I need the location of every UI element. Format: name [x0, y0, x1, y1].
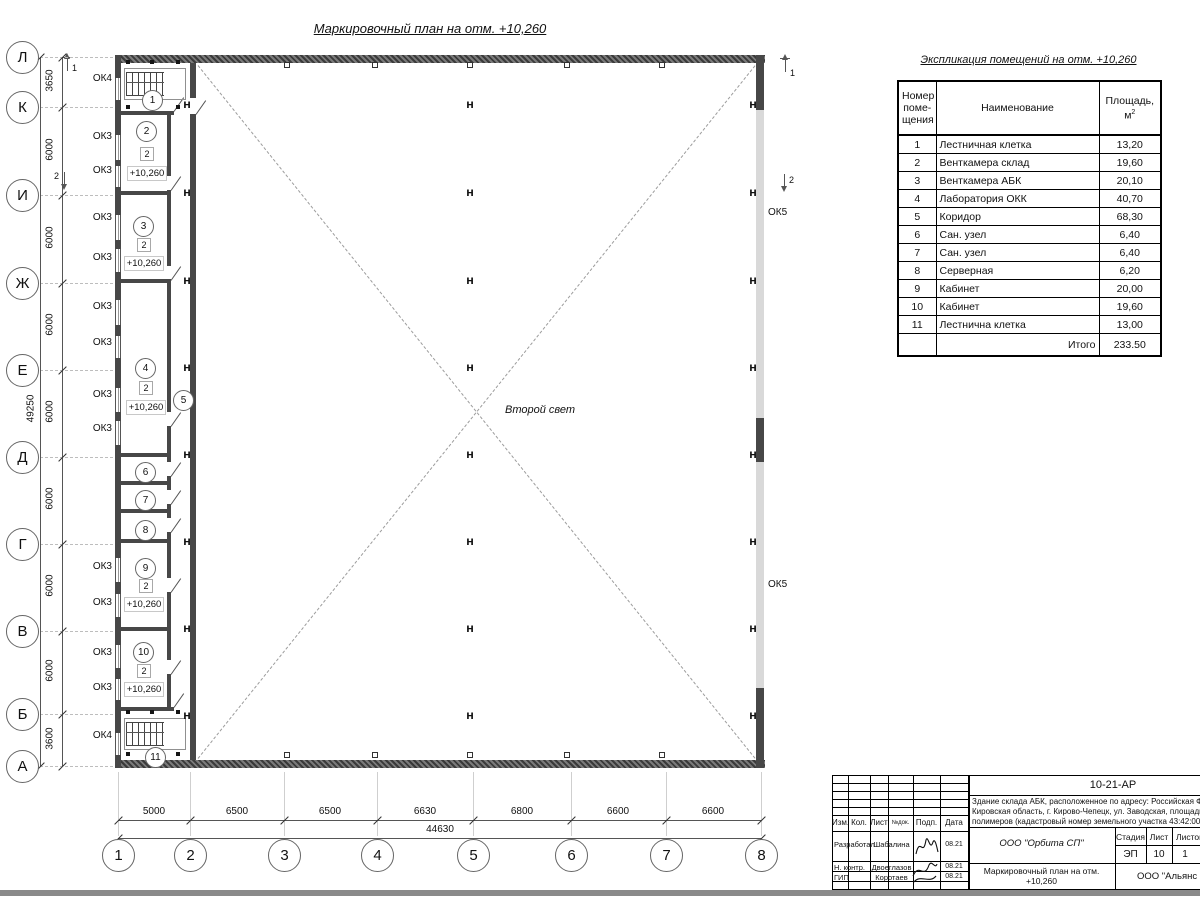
- left-wall-pier: [115, 617, 121, 645]
- cell-num: 4: [898, 190, 936, 208]
- header-name: Наименование: [936, 81, 1099, 135]
- axis-leader: [40, 195, 113, 196]
- axis-grid-line: [190, 772, 191, 836]
- table-row: 7Сан. узел6,40: [898, 244, 1161, 262]
- tb-line: [1115, 845, 1200, 846]
- cell-name: Коридор: [936, 208, 1099, 226]
- table-row: 4Лаборатория ОКК40,70: [898, 190, 1161, 208]
- door-swing: [171, 462, 182, 476]
- axis-leader: [40, 57, 113, 58]
- column-dot: [176, 752, 180, 756]
- right-wall-window-band: [756, 55, 764, 768]
- axis-number: 2: [174, 839, 207, 872]
- tb-date: 08.21: [940, 863, 968, 870]
- table-row: 1Лестничная клетка13,20: [898, 135, 1161, 154]
- cell-area: 19,60: [1099, 154, 1161, 172]
- hall-wall: [190, 63, 196, 98]
- tb-sheet-value: 10: [1146, 849, 1172, 860]
- cell-area: 20,00: [1099, 280, 1161, 298]
- tb-date: 08.21: [940, 841, 968, 848]
- axis-leader: [40, 544, 113, 545]
- left-wall-pier: [115, 55, 121, 78]
- axis-leader: [40, 631, 113, 632]
- column-mark: Н: [181, 538, 193, 548]
- column-mark: Н: [464, 277, 476, 287]
- tb-line: [832, 831, 968, 832]
- tb-col-kol: Кол.: [848, 818, 870, 827]
- table-row: 6Сан. узел6,40: [898, 226, 1161, 244]
- cell-area: 20,10: [1099, 172, 1161, 190]
- axis-grid-line: [666, 772, 667, 836]
- table-header-row: Номер поме- щения Наименование Площадь, …: [898, 81, 1161, 135]
- section-line: [785, 59, 786, 72]
- axis-letter: К: [6, 91, 39, 124]
- room-number: 8: [135, 520, 156, 541]
- dim-label: 6500: [207, 806, 267, 817]
- axis-letter: Л: [6, 41, 39, 74]
- stair-rail: [126, 82, 164, 83]
- cell-name: Кабинет: [936, 280, 1099, 298]
- cell-num: 9: [898, 280, 936, 298]
- column-dot: [176, 710, 180, 714]
- header-line: щения: [902, 114, 933, 126]
- tb-line: [968, 863, 1200, 864]
- tb-sheets-label: Листов: [1176, 832, 1200, 842]
- window-label-ok4: ОК4: [86, 73, 112, 85]
- explication-title: Экспликация помещений на отм. +10,260: [897, 54, 1160, 66]
- tb-line: [832, 807, 968, 808]
- door-swing: [171, 490, 182, 504]
- room-number: 5: [173, 390, 194, 411]
- cell-name: Кабинет: [936, 298, 1099, 316]
- left-wall-pier: [115, 100, 121, 135]
- wall-tick: [659, 62, 665, 68]
- tb-col-ndok: №док.: [888, 820, 913, 826]
- cell-num: 11: [898, 316, 936, 334]
- cell-num: 6: [898, 226, 936, 244]
- wall-tick: [564, 752, 570, 758]
- tb-drawing-title-line2: +10,260: [968, 876, 1115, 886]
- tb-design-org: ООО "Орбита СП": [968, 838, 1115, 849]
- plan-title: Маркировочный план на отм. +10,260: [260, 21, 600, 36]
- section-arrow-up-icon: [782, 54, 788, 60]
- window-label-ok3: ОК3: [86, 647, 112, 659]
- cell-name: Лестнична клетка: [936, 316, 1099, 334]
- cell-num: 3: [898, 172, 936, 190]
- tb-stage-label: Стадия: [1115, 832, 1146, 842]
- storey-mark: 2: [139, 381, 153, 395]
- column-mark: Н: [181, 364, 193, 374]
- tb-line: [968, 795, 1200, 796]
- cell-num: 8: [898, 262, 936, 280]
- dim-label: 6000: [45, 218, 56, 258]
- column-dot: [126, 60, 130, 64]
- column-mark: Н: [747, 277, 759, 287]
- second-light-label: Второй свет: [505, 404, 575, 416]
- dim-label: 6600: [683, 806, 743, 817]
- column-mark: Н: [181, 277, 193, 287]
- window-label-ok5: ОК5: [768, 207, 787, 218]
- section-number: 1: [72, 63, 77, 73]
- table-row: 8Серверная6,20: [898, 262, 1161, 280]
- column-mark: Н: [181, 712, 193, 722]
- room-number: 7: [135, 490, 156, 511]
- cell-name: Сан. узел: [936, 226, 1099, 244]
- elevation-mark: +10,260: [124, 256, 164, 271]
- tb-line: [832, 799, 968, 800]
- partition-wall: [121, 279, 171, 283]
- window-label-ok5: ОК5: [768, 579, 787, 590]
- dim-label: 3600: [45, 719, 56, 759]
- tb-address-line: Кировская область, г. Кирово-Чепецк, ул.…: [972, 807, 1200, 816]
- column-mark: Н: [747, 625, 759, 635]
- table-row: 5Коридор68,30: [898, 208, 1161, 226]
- cell-name: Венткамера склад: [936, 154, 1099, 172]
- dim-label: 6630: [395, 806, 455, 817]
- corridor-wall: [167, 280, 171, 412]
- sheet-frame-bar: [0, 890, 1200, 896]
- right-wall-pier: [756, 688, 764, 768]
- door-swing: [171, 518, 182, 532]
- total-value: 233.50: [1099, 334, 1161, 357]
- dim-label: 6800: [492, 806, 552, 817]
- column-dot: [126, 752, 130, 756]
- cell-area: 40,70: [1099, 190, 1161, 208]
- section-number: 1: [790, 68, 795, 78]
- section-line: [67, 58, 68, 71]
- dim-label: 6000: [45, 479, 56, 519]
- axis-number: 3: [268, 839, 301, 872]
- dim-label: 6000: [45, 392, 56, 432]
- left-wall-pier: [115, 582, 121, 594]
- wall-tick: [564, 62, 570, 68]
- axis-letter: В: [6, 615, 39, 648]
- stair-rail: [126, 732, 164, 733]
- explication-table: Номер поме- щения Наименование Площадь, …: [897, 80, 1162, 357]
- header-line: м2: [1103, 107, 1158, 122]
- unit-sup: 2: [1131, 109, 1135, 116]
- left-wall-pier: [115, 160, 121, 166]
- axis-letter: Д: [6, 441, 39, 474]
- column-mark: Н: [747, 712, 759, 722]
- dim-label: 5000: [124, 806, 184, 817]
- elevation-mark: +10,260: [124, 597, 164, 612]
- tb-date: 08.21: [940, 873, 968, 880]
- column-dot: [126, 710, 130, 714]
- axis-letter: И: [6, 179, 39, 212]
- axis-leader: [40, 283, 113, 284]
- column-mark: Н: [464, 538, 476, 548]
- dim-label: 6600: [588, 806, 648, 817]
- cell-name: Лестничная клетка: [936, 135, 1099, 154]
- partition-wall: [121, 111, 174, 115]
- elevation-mark: +10,260: [127, 166, 167, 181]
- wall-tick: [467, 62, 473, 68]
- cell-area: 13,00: [1099, 316, 1161, 334]
- tb-col-izm: Изм.: [832, 818, 848, 827]
- room-number: 3: [133, 216, 154, 237]
- section-arrow-down-icon: [781, 186, 787, 192]
- bottom-wall: [115, 760, 765, 768]
- window-label-ok3: ОК3: [86, 252, 112, 264]
- tb-line: [832, 783, 968, 784]
- room-number: 10: [133, 642, 154, 663]
- tb-address-line: полимеров (кадастровый номер земельного …: [972, 817, 1200, 826]
- cell-area: 6,40: [1099, 244, 1161, 262]
- axis-leader: [40, 107, 113, 108]
- window-label-ok3: ОК3: [86, 682, 112, 694]
- window-label-ok3: ОК3: [86, 131, 112, 143]
- table-row: 10Кабинет19,60: [898, 298, 1161, 316]
- column-mark: Н: [464, 101, 476, 111]
- cell-empty: [898, 334, 936, 357]
- column-mark: Н: [747, 189, 759, 199]
- cell-num: 7: [898, 244, 936, 262]
- tb-line: [832, 791, 968, 792]
- table-row: 11Лестнична клетка13,00: [898, 316, 1161, 334]
- room-number: 2: [136, 121, 157, 142]
- axis-letter: Ж: [6, 267, 39, 300]
- column-mark: Н: [747, 538, 759, 548]
- cell-area: 13,20: [1099, 135, 1161, 154]
- dim-label: 6000: [45, 651, 56, 691]
- door-swing: [171, 578, 182, 592]
- corridor-wall: [167, 674, 171, 711]
- cell-num: 1: [898, 135, 936, 154]
- axis-number: 8: [745, 839, 778, 872]
- tb-sheet-label: Лист: [1146, 832, 1172, 842]
- axis-letter: Г: [6, 528, 39, 561]
- tb-company: ООО "Альянс: [1137, 871, 1197, 882]
- drawing-sheet: { "plan": { "title": "Маркировочный план…: [0, 0, 1200, 900]
- tb-role: ГИП: [834, 873, 849, 882]
- axis-number: 5: [457, 839, 490, 872]
- cell-name: Лаборатория ОКК: [936, 190, 1099, 208]
- axis-leader: [40, 766, 113, 767]
- column-dot: [126, 105, 130, 109]
- tb-sheets-value: 1: [1172, 849, 1198, 860]
- column-mark: Н: [747, 101, 759, 111]
- column-mark: Н: [181, 101, 193, 111]
- dim-label: 6000: [45, 130, 56, 170]
- storey-mark: 2: [139, 579, 153, 593]
- top-wall: [115, 55, 765, 63]
- column-mark: Н: [464, 625, 476, 635]
- column-mark: Н: [464, 451, 476, 461]
- window-label-ok3: ОК3: [86, 597, 112, 609]
- room-number: 6: [135, 462, 156, 483]
- tb-stage-value: ЭП: [1115, 849, 1146, 860]
- column-mark: Н: [181, 189, 193, 199]
- dim-label: 3650: [45, 61, 56, 101]
- dimension-line: [40, 57, 41, 766]
- window-label-ok3: ОК3: [86, 301, 112, 313]
- table-total-row: Итого 233.50: [898, 334, 1161, 357]
- header-area: Площадь, м2: [1099, 81, 1161, 135]
- column-mark: Н: [747, 451, 759, 461]
- cell-name: Венткамера АБК: [936, 172, 1099, 190]
- column-mark: Н: [747, 364, 759, 374]
- left-wall-pier: [115, 668, 121, 679]
- wall-tick: [284, 62, 290, 68]
- storey-mark: 2: [140, 147, 154, 161]
- left-wall-pier: [115, 412, 121, 421]
- hall-wall: [190, 114, 196, 760]
- elevation-mark: +10,260: [124, 682, 164, 697]
- wall-tick: [284, 752, 290, 758]
- axis-grid-line: [761, 772, 762, 836]
- window-label-ok3: ОК3: [86, 561, 112, 573]
- column-mark: Н: [464, 364, 476, 374]
- dim-label: 6500: [300, 806, 360, 817]
- corridor-wall: [167, 115, 171, 176]
- axis-number: 4: [361, 839, 394, 872]
- window-label-ok3: ОК3: [86, 337, 112, 349]
- column-mark: Н: [464, 712, 476, 722]
- partition-wall: [121, 453, 171, 457]
- tb-line: [968, 827, 1200, 828]
- dim-total-label: 49250: [26, 379, 37, 439]
- axis-grid-line: [377, 772, 378, 836]
- tb-role: Н. контр.: [834, 863, 865, 872]
- tb-role: Разработал: [834, 840, 875, 849]
- partition-wall: [121, 627, 171, 631]
- tb-person-name: Двоеглазов: [870, 863, 913, 872]
- axis-number: 6: [555, 839, 588, 872]
- dim-label: 6000: [45, 566, 56, 606]
- header-line: Площадь,: [1103, 95, 1158, 107]
- signature-icon: [910, 856, 940, 886]
- door-swing: [174, 693, 185, 707]
- stair-flight: [126, 722, 164, 746]
- cell-area: 19,60: [1099, 298, 1161, 316]
- cell-area: 6,40: [1099, 226, 1161, 244]
- tb-person-name: Коротаев: [870, 873, 913, 882]
- cell-area: 6,20: [1099, 262, 1161, 280]
- tb-address-line: Здание склада АБК, расположенное по адре…: [972, 797, 1200, 806]
- room-number: 4: [135, 358, 156, 379]
- dim-total-label: 44630: [410, 824, 470, 835]
- elevation-mark: +10,260: [126, 400, 166, 415]
- window-label-ok3: ОК3: [86, 389, 112, 401]
- axis-leader: [40, 714, 113, 715]
- wall-tick: [467, 752, 473, 758]
- tb-line: [832, 861, 968, 862]
- column-mark: Н: [181, 625, 193, 635]
- header-line: поме-: [902, 102, 933, 114]
- axis-leader: [40, 457, 113, 458]
- room-number: 1: [142, 90, 163, 111]
- axis-grid-line: [118, 772, 119, 836]
- cell-area: 68,30: [1099, 208, 1161, 226]
- axis-grid-line: [571, 772, 572, 836]
- left-wall-pier: [115, 755, 121, 768]
- wall-tick: [372, 62, 378, 68]
- corridor-wall: [167, 592, 171, 660]
- door-swing: [196, 100, 207, 114]
- axis-leader: [40, 370, 113, 371]
- left-wall-pier: [115, 240, 121, 249]
- table-row: 3Венткамера АБК20,10: [898, 172, 1161, 190]
- door-swing: [171, 266, 182, 280]
- column-mark: Н: [464, 189, 476, 199]
- tb-col-podp: Подп.: [913, 818, 940, 827]
- cell-name: Серверная: [936, 262, 1099, 280]
- axis-letter: Е: [6, 354, 39, 387]
- section-number: 2: [789, 175, 794, 185]
- column-dot: [150, 60, 154, 64]
- dimension-line: [62, 57, 63, 766]
- axis-number: 1: [102, 839, 135, 872]
- door-swing: [171, 660, 182, 674]
- tb-col-data: Дата: [940, 818, 968, 827]
- axis-letter: А: [6, 750, 39, 783]
- column-dot: [150, 710, 154, 714]
- cell-num: 5: [898, 208, 936, 226]
- section-number: 2: [54, 171, 59, 181]
- tb-line: [832, 815, 968, 816]
- tb-drawing-title-line1: Маркировочный план на отм.: [968, 866, 1115, 876]
- column-dot: [176, 60, 180, 64]
- total-label: Итого: [936, 334, 1099, 357]
- cell-name: Сан. узел: [936, 244, 1099, 262]
- door-swing: [171, 412, 182, 426]
- axis-number: 7: [650, 839, 683, 872]
- partition-wall: [121, 191, 171, 195]
- cell-num: 10: [898, 298, 936, 316]
- corridor-wall: [167, 190, 171, 266]
- wall-tick: [659, 752, 665, 758]
- table-row: 9Кабинет20,00: [898, 280, 1161, 298]
- left-wall-pier: [115, 358, 121, 388]
- cell-num: 2: [898, 154, 936, 172]
- dim-label: 6000: [45, 305, 56, 345]
- storey-mark: 2: [137, 238, 151, 252]
- left-wall-pier: [115, 325, 121, 336]
- axis-letter: Б: [6, 698, 39, 731]
- window-label-ok3: ОК3: [86, 165, 112, 177]
- column-dot: [176, 105, 180, 109]
- window-label-ok3: ОК3: [86, 423, 112, 435]
- left-wall-pier: [115, 272, 121, 300]
- axis-grid-line: [284, 772, 285, 836]
- tb-col-list: Лист: [870, 818, 888, 827]
- tb-person-name: Шабалина: [870, 840, 913, 849]
- left-wall-pier: [115, 700, 121, 733]
- section-bar: [780, 58, 790, 59]
- room-number: 11: [145, 747, 166, 768]
- room-number: 9: [135, 558, 156, 579]
- header-room-number: Номер поме- щения: [898, 81, 936, 135]
- header-line: Номер: [902, 90, 933, 102]
- window-label-ok3: ОК3: [86, 212, 112, 224]
- axis-grid-line: [473, 772, 474, 836]
- wall-tick: [372, 752, 378, 758]
- storey-mark: 2: [137, 664, 151, 678]
- table-row: 2Венткамера склад19,60: [898, 154, 1161, 172]
- tb-doc-number: 10-21-АР: [968, 779, 1200, 791]
- window-label-ok4: ОК4: [86, 730, 112, 742]
- column-mark: Н: [181, 451, 193, 461]
- door-swing: [171, 176, 182, 190]
